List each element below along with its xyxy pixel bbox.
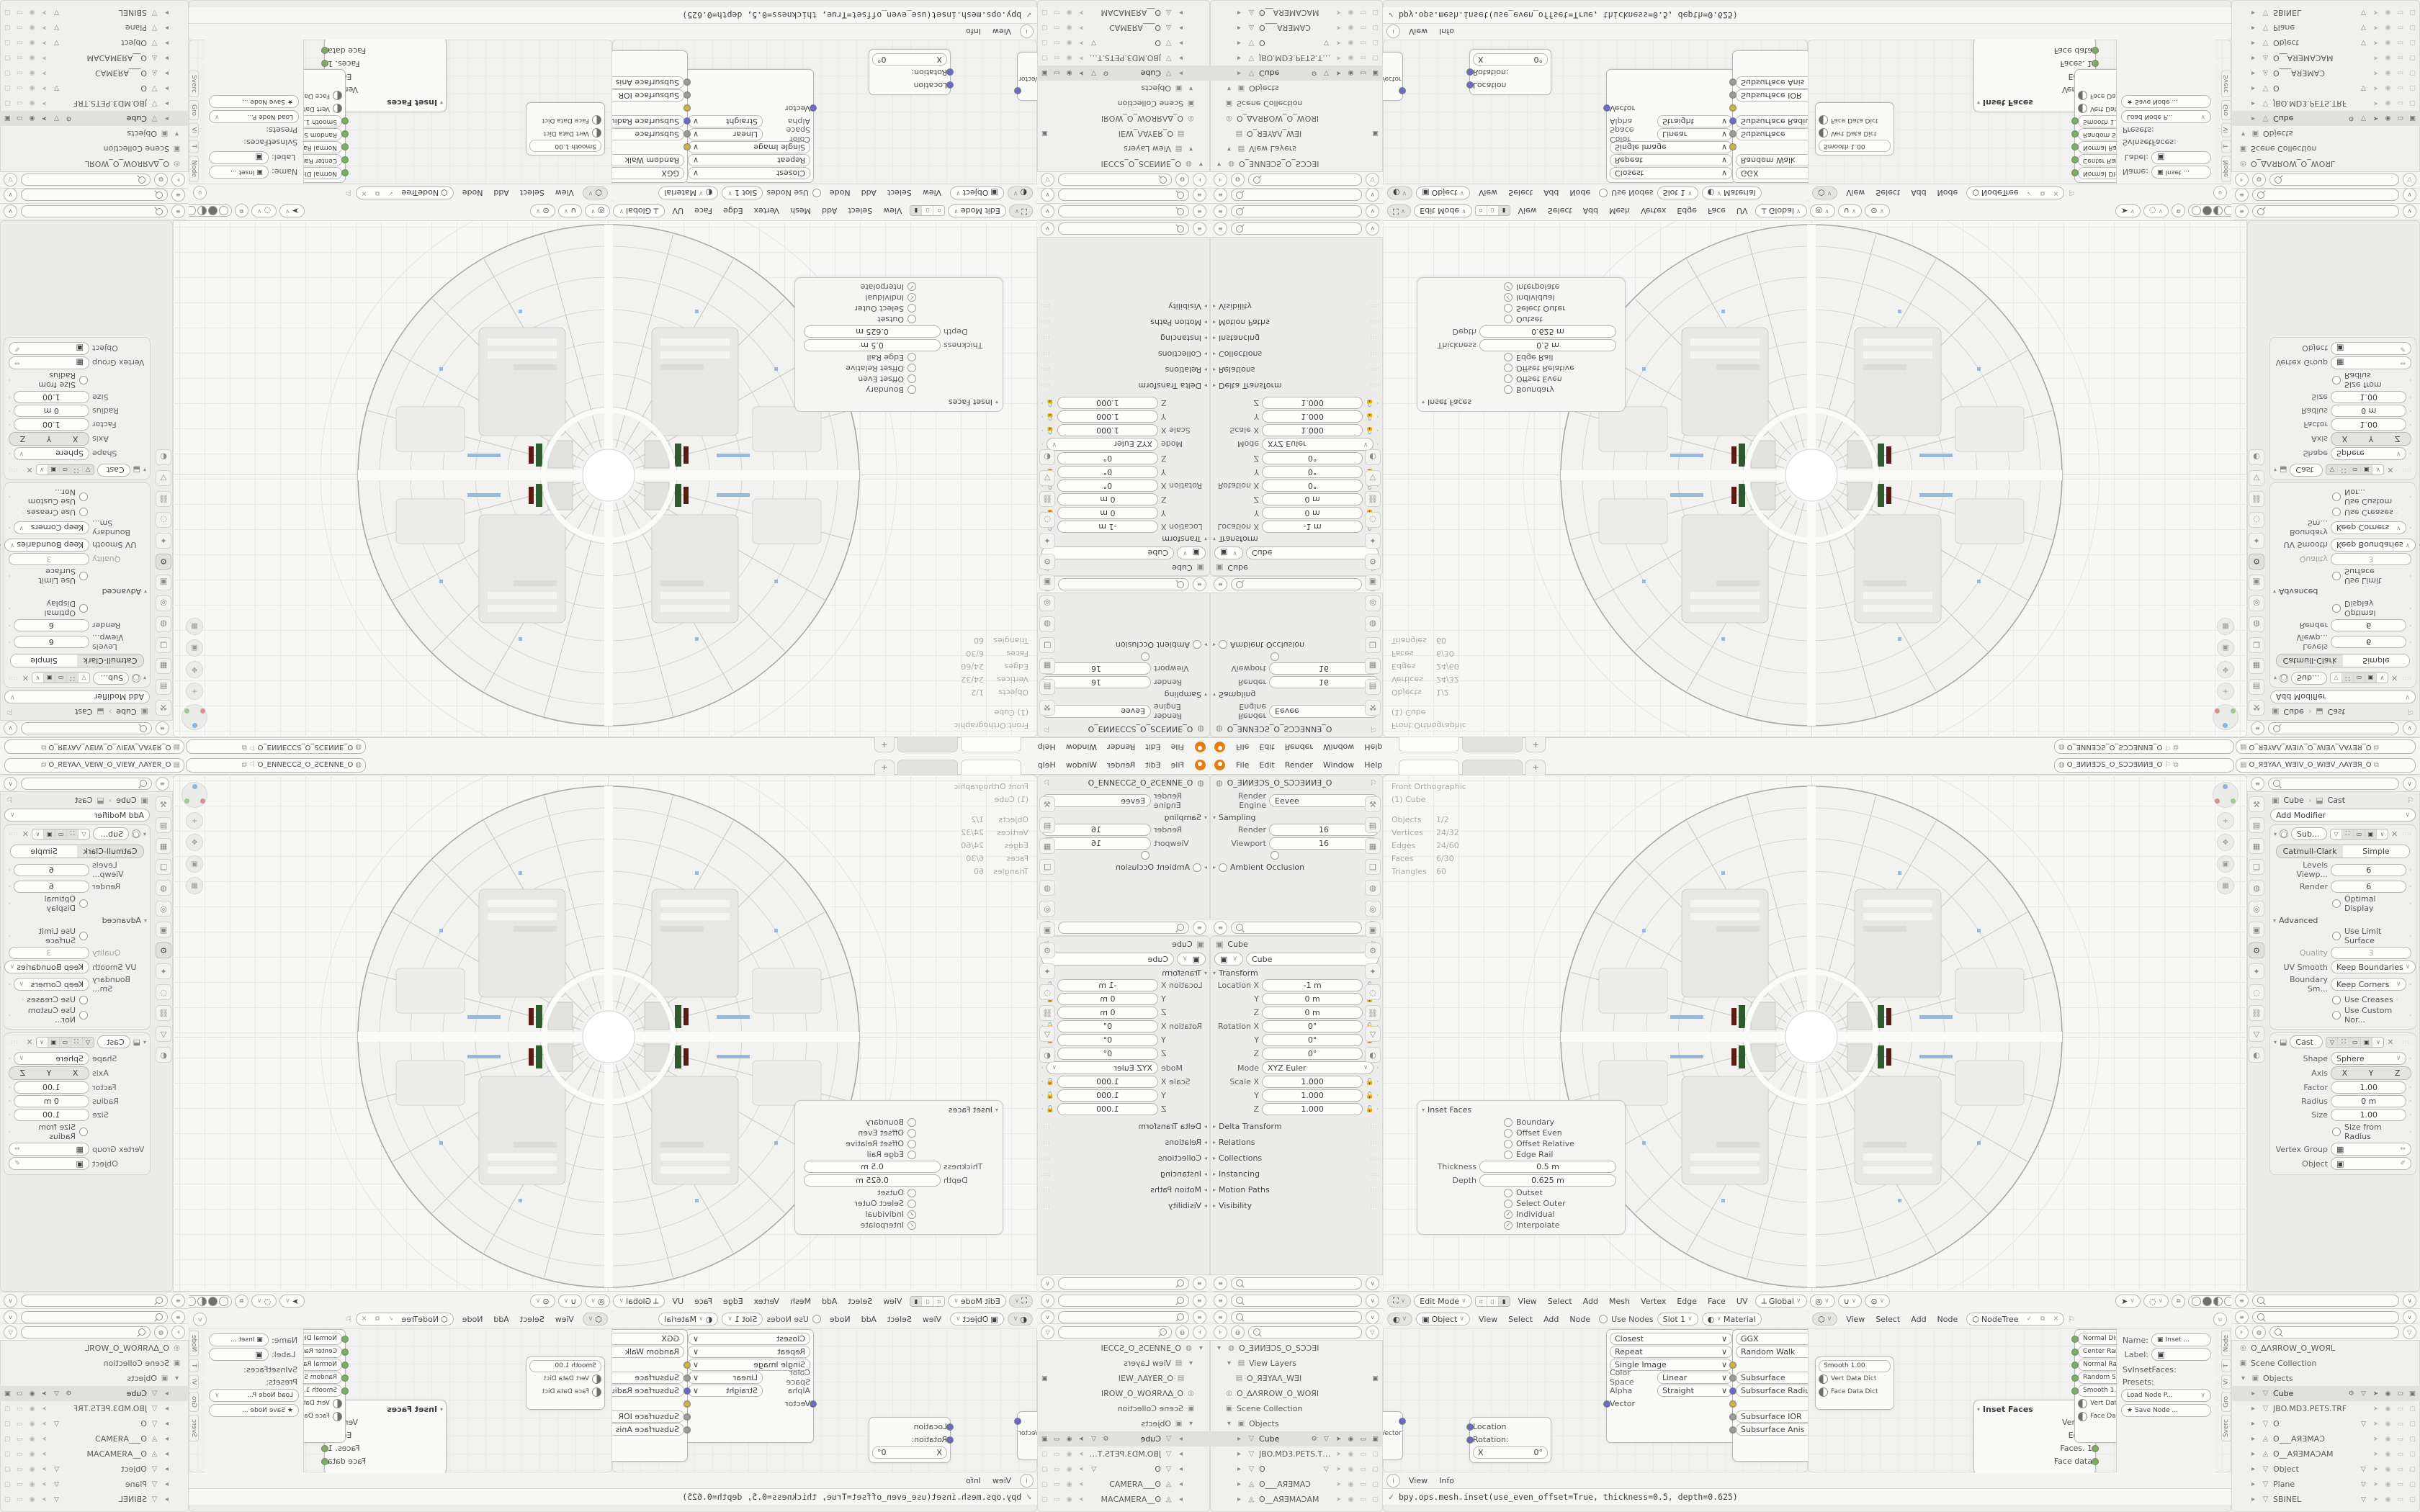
eye-icon[interactable]: ◉	[1065, 1451, 1074, 1458]
material-slot-select[interactable]: Slot 1∨	[722, 186, 763, 199]
tab-world-icon[interactable]: ◎	[2249, 595, 2264, 611]
camera-icon[interactable]: ▢	[3, 1481, 12, 1488]
sverchok-menu-item[interactable]: View	[550, 187, 579, 199]
camera-icon[interactable]: ▢	[3, 70, 12, 77]
sverchok-menu-item[interactable]: Select	[1870, 1313, 1905, 1326]
viewport-menu-item[interactable]: UV	[668, 1295, 689, 1308]
outliner-row[interactable]: ▾ ▣ Objects	[1210, 1416, 1383, 1431]
axis-gizmo[interactable]	[181, 704, 207, 730]
topbar-menu-item[interactable]: File	[1231, 741, 1254, 753]
pin-icon[interactable]: ⚐	[2068, 1315, 2075, 1324]
modifier-select-value[interactable]: Keep Boundaries∨	[2331, 539, 2416, 552]
outliner-row[interactable]: ▸ ◬ O___AЯƎMAƆ ➤ ◉ ▭ ▢	[1210, 20, 1383, 35]
search-input[interactable]	[2269, 174, 2399, 186]
sv-params-node[interactable]: Smooth 1.00 Vert Data Dict Face Data Dic…	[1815, 102, 1894, 156]
collapse-icon[interactable]: ▾	[2274, 831, 2277, 837]
display-mode-icon[interactable]: ⊧	[1214, 174, 1227, 187]
wireframe-shading-icon[interactable]	[2192, 1297, 2201, 1306]
transform-row-value[interactable]: 0 m	[1057, 493, 1158, 505]
pivot-point-select[interactable]: ◎∨	[585, 1295, 610, 1308]
disclosure-icon[interactable]: ▸	[162, 39, 171, 47]
monitor-toggle-icon[interactable]: ▭	[2349, 1038, 2361, 1047]
disclosure-icon[interactable]: ▸	[162, 84, 171, 92]
pin-icon[interactable]: ⚐	[2407, 707, 2414, 716]
realtime-toggle-icon[interactable]: ⛶	[71, 1038, 82, 1047]
filter-id-icon[interactable]: ◍	[154, 174, 168, 187]
mode-select[interactable]: Edit Mode∨	[1414, 1295, 1471, 1308]
select-cursor-icon[interactable]: ➤	[40, 70, 49, 77]
n-panel-tab[interactable]: T	[189, 140, 199, 153]
animate-dot-icon[interactable]: ·	[1376, 427, 1379, 433]
tab-modifier-icon[interactable]: ⚙	[2249, 942, 2264, 958]
triangulate-icon[interactable]: ▽	[1089, 1466, 1098, 1473]
eye-icon[interactable]: ◉	[2383, 100, 2393, 107]
eye-icon[interactable]: ◉	[27, 9, 37, 17]
outliner-row[interactable]: ▸ ◬ O__AЯƎMAƆAM ➤ ◉ ▭ ▢	[1210, 5, 1383, 20]
sverchok-menu-item[interactable]: Node	[457, 1313, 488, 1326]
info-log-row[interactable]: ✓ bpy.ops.mesh.inset(use_even_offset=Tru…	[189, 1489, 1037, 1505]
pin-icon[interactable]: ⚐	[2068, 189, 2075, 198]
topbar-menu-item[interactable]: File	[1166, 759, 1189, 771]
disclosure-icon[interactable]: ▸	[2249, 1420, 2258, 1428]
search-input[interactable]	[1231, 1277, 1362, 1290]
outliner-row[interactable]: ▾ ▤ View Layers	[1037, 141, 1210, 156]
pin-icon[interactable]: ⚐	[345, 1315, 352, 1324]
sampling-row-value[interactable]: 16	[1041, 824, 1151, 836]
principled-bsdf-node[interactable]: GGX Random Walk Subsurface Subsurface Ra…	[612, 1329, 688, 1462]
shader-menu-item[interactable]: View	[918, 187, 946, 199]
funnel-filter-icon[interactable]: ▽	[1366, 174, 1379, 187]
tab-tool-icon[interactable]: ⚒	[2249, 796, 2264, 812]
select-cursor-icon[interactable]: ➤	[1077, 24, 1086, 32]
sampling-row-value[interactable]: 16	[1041, 837, 1151, 850]
shader-menu-item[interactable]: Add	[1538, 1313, 1564, 1326]
disclosure-icon[interactable]: ▸	[2249, 1450, 2258, 1458]
cast-row-value[interactable]: 1.00	[2331, 391, 2406, 403]
modifier-wrench-icon[interactable]: ⚙	[2347, 115, 2356, 122]
topbar-menu-item[interactable]: Edit	[1254, 741, 1279, 753]
axis-gizmo[interactable]	[2213, 704, 2238, 730]
disclosure-icon[interactable]: ▸	[1176, 1450, 1186, 1458]
outliner-row[interactable]: ◎ O_ΔΛЯROW_O_WOЯI	[1210, 111, 1383, 126]
camera-icon[interactable]: ▢	[3, 1466, 12, 1473]
outliner-row[interactable]: ▸ ▽ SBINEL ▽ ➤ ◉ ▭ ▢	[0, 5, 189, 20]
shader-editor[interactable]: ◐∨ ▣Object∨ ViewSelectAddNode Use Nodes …	[612, 40, 1037, 202]
triangulate-icon[interactable]: ▽	[1322, 1466, 1331, 1473]
modifier-wrench-icon[interactable]: ⚙	[1101, 1436, 1111, 1443]
transform-row-value[interactable]: -1 m	[1057, 521, 1158, 533]
wireframe-shading-icon[interactable]	[219, 1297, 228, 1306]
face-select-icon[interactable]: ▮	[910, 207, 921, 216]
eye-icon[interactable]: ◉	[1346, 1451, 1355, 1458]
camera-icon[interactable]: ▢	[1371, 1466, 1380, 1473]
bsdf-row-pill[interactable]: Subsurface IOR	[1736, 90, 1808, 102]
info-menu-item[interactable]: Info	[1434, 26, 1459, 38]
triangulate-icon[interactable]: ▽	[52, 1496, 61, 1503]
outliner-row[interactable]: ▸ ◬ O__AЯƎMAƆAM ➤ ◉ ▭ ▢	[0, 1446, 189, 1462]
tab-physics-icon[interactable]: ◌	[2249, 512, 2264, 528]
disclosure-icon[interactable]: ▸	[162, 1480, 171, 1488]
disclosure-icon[interactable]: ▸	[2249, 54, 2258, 62]
viewport-menu-item[interactable]: View	[1513, 1295, 1542, 1308]
camera-icon[interactable]: ▢	[3, 85, 12, 92]
axis-toggle-button[interactable]: X	[2331, 433, 2358, 445]
tab-viewlayer-icon[interactable]: ❏	[156, 637, 171, 653]
n-panel-tab[interactable]: Sverc	[2221, 71, 2231, 97]
operator-field-value[interactable]: 0.625 m	[804, 325, 941, 338]
viewport-menu-item[interactable]: UV	[1731, 205, 1753, 217]
camera-icon[interactable]: ▢	[2408, 70, 2417, 77]
info-menu-item[interactable]: View	[1404, 26, 1433, 38]
outliner-row[interactable]: ◎ O_ΔΛЯROW_O_WOЯL	[2231, 1341, 2420, 1356]
collapse-icon[interactable]: ▾	[143, 1039, 146, 1045]
filter-id-icon[interactable]: ◍	[1175, 1326, 1189, 1339]
cast-row-value[interactable]: 1.00	[2331, 418, 2406, 431]
pin-icon[interactable]: ⚐	[1043, 778, 1050, 788]
tab-viewlayer-icon[interactable]: ❏	[2249, 859, 2264, 875]
collapsed-panel-header[interactable]: ▸Delta Transform::::	[1213, 381, 1380, 390]
eye-icon[interactable]: ◉	[2383, 1405, 2393, 1413]
outliner-row[interactable]: ▸ ▽ O ▽ ➤ ◉ ▭ ▢	[1037, 35, 1210, 50]
options-chevron-icon[interactable]: ∨	[2403, 1310, 2416, 1324]
modifier-name-field[interactable]: Cast	[2290, 464, 2323, 477]
render-engine-select[interactable]: Eevee∨	[1269, 705, 1379, 718]
zoom-icon[interactable]: +	[2217, 683, 2234, 700]
view-layer-selector[interactable]: ▤ O_ЯƎYAΛ_WƎIV_O_WIƎV_ΛAYƎЯ_O ⧉	[2236, 758, 2416, 773]
select-cursor-icon[interactable]: ➤	[2371, 70, 2380, 77]
camera-icon[interactable]: ▣	[1371, 1436, 1380, 1443]
load-node-preset-button[interactable]: Load Node P...∨	[2121, 1389, 2211, 1402]
monitor-icon[interactable]: ▭	[1052, 1466, 1062, 1473]
modifier-row-value[interactable]: 6	[14, 619, 89, 631]
tab-object-icon[interactable]: ▣	[1365, 922, 1381, 937]
copy-icon[interactable]: ⧉	[2374, 761, 2379, 769]
viewport-menu-item[interactable]: Add	[817, 1295, 842, 1308]
select-cursor-icon[interactable]: ➤	[1334, 1466, 1343, 1473]
realtime-toggle-icon[interactable]: ⛶	[66, 829, 78, 839]
ambient-occlusion-panel-header[interactable]: ▸ Ambient Occlusion::::	[1040, 640, 1207, 649]
modifier-row-value[interactable]: 6	[14, 881, 89, 893]
select-cursor-icon[interactable]: ➤	[1334, 24, 1343, 32]
funnel-filter-icon[interactable]: ▽	[1041, 1326, 1054, 1339]
triangulate-icon[interactable]: ▽	[52, 1466, 61, 1473]
show-gizmo-toggle[interactable]: ➤∨	[2115, 1295, 2141, 1308]
n-panel-tab[interactable]: Node	[2221, 156, 2231, 182]
simple-button[interactable]: Simple	[2343, 845, 2409, 858]
material-shading-icon[interactable]	[2213, 1297, 2223, 1306]
transform-row-value[interactable]: 0 m	[1262, 1007, 1363, 1019]
monitor-icon[interactable]: ▭	[1052, 1436, 1062, 1443]
pin-icon[interactable]: ⚐	[249, 761, 256, 769]
shader-type-select[interactable]: ▣Object∨	[950, 186, 1004, 199]
operator-checkbox[interactable]: Outset	[877, 315, 916, 324]
operator-checkbox[interactable]: Select Outer	[1504, 1199, 1566, 1208]
monitor-icon[interactable]: ▭	[2396, 1405, 2405, 1413]
options-chevron-icon[interactable]: ∨	[4, 777, 17, 791]
operator-checkbox[interactable]: Edge Rail	[1504, 1150, 1553, 1159]
eye-icon[interactable]: ◉	[2383, 1421, 2393, 1428]
tab-physics-icon[interactable]: ◌	[156, 984, 171, 1000]
collapsed-panel-header[interactable]: ▸Visibility::::	[1040, 1201, 1207, 1210]
outliner-row[interactable]: ▸ ▽ Plane ▽ ➤ ◉ ▭ ▢	[0, 20, 189, 35]
camera-view-icon[interactable]: ▣	[186, 855, 203, 873]
search-input[interactable]	[1058, 579, 1189, 591]
operator-field-value[interactable]: 0.5 m	[1479, 339, 1616, 351]
outliner-row[interactable]: ▾ ▣ Objects	[2231, 126, 2420, 141]
load-node-preset-button[interactable]: Load Node P...∨	[209, 1389, 299, 1402]
outliner-row[interactable]: ▸ ◬ O__AЯƎMAƆAM ➤ ◉ ▭ ▢	[0, 50, 189, 66]
viewport-3d[interactable]: Front Orthographic (1) Cube Objects1/2Ve…	[173, 775, 1037, 1310]
modifier-name-field[interactable]: Sub...	[2291, 672, 2327, 685]
filter-id-icon[interactable]: ◍	[1231, 174, 1245, 187]
camera-icon[interactable]: ▢	[2408, 100, 2417, 107]
camera-icon[interactable]: ▢	[2408, 1405, 2417, 1413]
triangulate-icon[interactable]: ▽	[2359, 85, 2368, 92]
realtime-toggle-icon[interactable]: ⛶	[2342, 829, 2354, 839]
axis-toggle-button[interactable]: Z	[9, 1067, 36, 1079]
disclosure-icon[interactable]: ▸	[1234, 54, 1244, 62]
outliner-row[interactable]: ▤ O_ЯƎYAΛ_WƎI ▣	[1037, 126, 1210, 141]
camera-icon[interactable]: ▢	[1040, 1496, 1049, 1503]
delete-modifier-icon[interactable]: ✕	[2387, 1038, 2393, 1047]
tab-world-icon[interactable]: ◎	[1039, 901, 1055, 917]
use-limit-surface-checkbox[interactable]: Use Limit Surface	[2332, 567, 2406, 585]
outliner-row[interactable]: ◎ O_ΔΛЯROW_O_WOЯI	[1037, 111, 1210, 126]
render-toggle-icon[interactable]: ▣	[2361, 466, 2372, 475]
camera-icon[interactable]: ▢	[1371, 1451, 1380, 1458]
monitor-icon[interactable]: ▭	[15, 1481, 24, 1488]
eye-icon[interactable]: ◉	[2383, 1436, 2393, 1443]
modifier-checkbox[interactable]: Use Custom Nor...	[2332, 487, 2406, 506]
monitor-icon[interactable]: ▭	[15, 1466, 24, 1473]
camera-icon[interactable]: ▢	[3, 1405, 12, 1413]
n-panel-tab[interactable]: Sverc	[189, 71, 199, 97]
edit-mode-toggle-icon[interactable]: ▽	[78, 674, 89, 683]
search-input[interactable]	[2252, 1311, 2399, 1323]
cast-row-value[interactable]: 1.00	[14, 1081, 89, 1094]
render-toggle-icon[interactable]: ▣	[2365, 674, 2377, 683]
eye-icon[interactable]: ◉	[27, 55, 37, 62]
options-chevron-icon[interactable]: ∨	[2403, 205, 2416, 219]
info-log-row[interactable]: ✓ bpy.ops.mesh.inset(use_even_offset=Tru…	[1383, 7, 2231, 23]
eye-icon[interactable]: ◉	[2383, 1496, 2393, 1503]
node-option-select[interactable]: Repeat∨	[688, 155, 810, 167]
modifier-wrench-icon[interactable]: ⚙	[2347, 1390, 2356, 1398]
funnel-filter-icon[interactable]: ▽	[4, 174, 17, 187]
transform-orientation-select[interactable]: ⟂Global∨	[1755, 204, 1806, 217]
tab-constraints-icon[interactable]: ⛓	[1039, 491, 1055, 507]
disclosure-icon[interactable]: ▾	[1214, 160, 1224, 168]
select-cursor-icon[interactable]: ➤	[40, 1451, 49, 1458]
viewport-menu-item[interactable]: Edge	[1672, 1295, 1702, 1308]
tab-output-icon[interactable]: ▦	[1365, 658, 1381, 674]
tab-tool-icon[interactable]: ⚒	[1365, 700, 1381, 716]
lock-icon[interactable]: 🔓	[1047, 1106, 1054, 1113]
tab-scene-icon[interactable]: ◍	[1039, 616, 1055, 632]
node-field-select[interactable]: Linear∨	[1657, 1372, 1732, 1384]
add-workspace-tab[interactable]: +	[1525, 738, 1546, 753]
shader-menu-item[interactable]: Select	[882, 187, 917, 199]
node-name-field[interactable]: ▣Inset ...	[209, 166, 269, 179]
copy-icon[interactable]: ⧉	[2173, 743, 2178, 751]
disclosure-icon[interactable]: ▸	[2249, 114, 2258, 122]
select-cursor-icon[interactable]: ➤	[2371, 55, 2380, 62]
tab-particles-icon[interactable]: ✦	[1365, 963, 1381, 979]
shader-menu-item[interactable]: Add	[856, 1313, 882, 1326]
inset-panel-title-row[interactable]: ▾Inset Faces	[799, 397, 998, 407]
operator-field-value[interactable]: 0.5 m	[804, 339, 941, 351]
sverchok-menu-item[interactable]: Node	[457, 187, 488, 199]
select-cursor-icon[interactable]: ➤	[1077, 1496, 1086, 1503]
select-cursor-icon[interactable]: ➤	[2371, 100, 2380, 107]
monitor-icon[interactable]: ▭	[1052, 40, 1062, 47]
filter-icon[interactable]: ≡	[1193, 578, 1206, 592]
outliner-row[interactable]: ▸ ◬ O__AЯƎMAƆAM ➤ ◉ ▭ ▢	[1210, 1492, 1383, 1507]
outliner-row[interactable]: ▸ ▽ Plane ▽ ➤ ◉ ▭ ▢	[2231, 20, 2420, 35]
filter-icon[interactable]: ≡	[1193, 1277, 1206, 1290]
eye-icon[interactable]: ◉	[27, 1421, 37, 1428]
pin-icon[interactable]: ⚐	[1370, 724, 1377, 734]
node-field-select[interactable]: Linear∨	[688, 1372, 763, 1384]
triangulate-icon[interactable]: ▽	[2359, 1390, 2368, 1398]
disclosure-icon[interactable]: ▾	[2238, 1374, 2248, 1382]
shader-editor[interactable]: ◐∨ ▣Object∨ ViewSelectAddNode Use Nodes …	[612, 1310, 1037, 1472]
sverchok-menu-item[interactable]: Select	[1870, 187, 1905, 199]
monitor-icon[interactable]: ▭	[15, 70, 24, 77]
operator-checkbox[interactable]: Outset	[1504, 315, 1543, 324]
eye-icon[interactable]: ◉	[27, 70, 37, 77]
disclosure-icon[interactable]: ▸	[1176, 54, 1186, 62]
cast-object-field[interactable]: ▣✐	[2331, 342, 2411, 355]
sverchok-menu-item[interactable]: Select	[515, 1313, 550, 1326]
outliner-row[interactable]: ▸ ▽ Cube ⚙ ▽ ➤ ◉ ▭ ▣	[2231, 111, 2420, 126]
monitor-icon[interactable]: ▭	[15, 1436, 24, 1443]
disclosure-icon[interactable]: ▸	[1234, 69, 1244, 77]
funnel-filter-icon[interactable]: ▽	[2403, 1326, 2416, 1339]
scale-row-value[interactable]: 1.000	[1057, 397, 1158, 409]
extras-chevron-icon[interactable]: ∨	[37, 466, 48, 475]
monitor-icon[interactable]: ▭	[2396, 1421, 2405, 1428]
node-field-select[interactable]: Linear∨	[1657, 129, 1732, 141]
outliner-row[interactable]: ▾ ▣ Objects	[2231, 1371, 2420, 1386]
outliner-row[interactable]: ▾ ◍ O_ƎИИƎƆS_O_SƆƆƎI	[1210, 156, 1383, 171]
pivot-point-select[interactable]: ◎∨	[585, 204, 610, 217]
eye-icon[interactable]: ◉	[27, 1496, 37, 1503]
outliner-row[interactable]: ▸ ▽ JBO.MD3.PETS.TRF ➤ ◉ ▭ ▢	[0, 1401, 189, 1416]
shader-menu-item[interactable]: View	[918, 1313, 946, 1326]
disclosure-icon[interactable]: ▸	[2249, 24, 2258, 32]
search-input[interactable]	[21, 1295, 168, 1307]
extras-chevron-icon[interactable]: ∨	[2377, 829, 2388, 839]
eye-icon[interactable]: ◉	[2383, 9, 2393, 17]
disclosure-icon[interactable]: ▸	[1234, 1435, 1244, 1443]
sampling-row-value[interactable]: 16	[1269, 676, 1379, 688]
display-mode-icon[interactable]: ⊧	[171, 174, 185, 187]
monitor-icon[interactable]: ▭	[1052, 9, 1062, 17]
view-layer-selector[interactable]: ▤ O_ЯƎYAΛ_WƎIV_O_WIƎV_ΛAYƎЯ_O ⧉	[2236, 740, 2416, 755]
move-hand-icon[interactable]: ✥	[186, 834, 203, 851]
eye-icon[interactable]: ◉	[27, 1451, 37, 1458]
disclosure-icon[interactable]: ▸	[2249, 1465, 2258, 1473]
eye-icon[interactable]: ◉	[27, 115, 37, 122]
transform-row-value[interactable]: 0 m	[1262, 507, 1363, 519]
eye-icon[interactable]: ◉	[1065, 1466, 1074, 1473]
inset-panel-title-row[interactable]: ▾Inset Faces	[799, 1105, 998, 1115]
disclosure-icon[interactable]: ▸	[2249, 69, 2258, 77]
outliner-row[interactable]: ▾ ▤ View Layers	[1210, 1356, 1383, 1371]
select-cursor-icon[interactable]: ➤	[40, 55, 49, 62]
collapsed-panel-header[interactable]: ▸Motion Paths::::	[1040, 1185, 1207, 1194]
quality-value[interactable]: 3	[9, 553, 89, 565]
monitor-icon[interactable]: ▭	[15, 1390, 24, 1398]
camera-icon[interactable]: ▢	[1371, 9, 1380, 17]
select-cursor-icon[interactable]: ➤	[1077, 40, 1086, 47]
load-node-preset-button[interactable]: Load Node P...∨	[209, 110, 299, 123]
select-cursor-icon[interactable]: ➤	[1077, 1466, 1086, 1473]
tab-particles-icon[interactable]: ✦	[156, 963, 171, 979]
bsdf-row-pill[interactable]: Random Walk	[1736, 1346, 1808, 1358]
eye-icon[interactable]: ◉	[2383, 1481, 2393, 1488]
transform-row-value[interactable]: 0°	[1262, 1048, 1363, 1060]
extras-chevron-icon[interactable]: ∨	[32, 829, 43, 839]
node-name-field[interactable]: ▣Inset ...	[209, 1333, 269, 1346]
filter-id-icon[interactable]: ◍	[2252, 1326, 2266, 1339]
advanced-panel-title[interactable]: Advanced	[2279, 916, 2318, 925]
topbar-menu-item[interactable]: Window	[1318, 741, 1359, 753]
sampling-row-value[interactable]: 16	[1269, 662, 1379, 675]
collapsed-panel-header[interactable]: ▸Visibility::::	[1213, 1201, 1380, 1210]
outliner-row[interactable]: ▸ ▽ Cube ⚙ ▽ ➤ ◉ ▭ ▣	[1037, 66, 1210, 81]
n-panel-tab[interactable]: Node	[189, 156, 199, 182]
eye-icon[interactable]: ◉	[27, 1436, 37, 1443]
ao-toggle[interactable]	[1193, 863, 1201, 872]
render-toggle-icon[interactable]: ▣	[2361, 1038, 2372, 1047]
n-panel-tab[interactable]: Vi	[2221, 123, 2231, 138]
node-option-select[interactable]: Repeat∨	[688, 1346, 810, 1358]
outliner-row[interactable]: ▸ ◬ O___AЯƎMAƆ ➤ ◉ ▭ ▢	[1037, 20, 1210, 35]
scale-row-value[interactable]: 1.000	[1262, 397, 1363, 409]
info-icon[interactable]: i	[1386, 25, 1400, 39]
sverchok-menu-item[interactable]: View	[1841, 1313, 1870, 1326]
operator-checkbox[interactable]: Boundary	[1504, 385, 1554, 395]
outliner-row[interactable]: ▸ ▽ Plane ▽ ➤ ◉ ▭ ▢	[0, 1477, 189, 1492]
face-select-icon[interactable]: ▮	[1499, 1297, 1510, 1306]
eye-icon[interactable]: ◉	[2383, 115, 2393, 122]
modifier-checkbox[interactable]: Use Custom Nor...	[14, 487, 88, 506]
node-name-field[interactable]: ▣Inset ...	[2151, 166, 2211, 179]
eye-icon[interactable]: ◉	[2383, 1466, 2393, 1473]
bsdf-row-pill[interactable]: GGX	[1736, 1333, 1808, 1345]
camera-icon[interactable]: ▢	[2408, 55, 2417, 62]
mapping-x-field[interactable]: X 0°	[1473, 54, 1548, 66]
camera-icon[interactable]: ▢	[1040, 55, 1049, 62]
tab-object-icon[interactable]: ▣	[2249, 575, 2264, 590]
search-input[interactable]	[21, 206, 168, 218]
modifier-checkbox[interactable]: Use Creases	[2332, 508, 2393, 517]
camera-icon[interactable]: ▢	[1040, 9, 1049, 17]
options-chevron-icon[interactable]: ∨	[1366, 1277, 1379, 1290]
perspective-toggle-icon[interactable]: ▦	[2217, 877, 2234, 894]
outliner-row[interactable]: ▸ ▽ O ▽ ➤ ◉ ▭ ▢	[1037, 1462, 1210, 1477]
object-id-icon[interactable]: ▣∨	[1214, 953, 1243, 966]
filter-icon[interactable]: ≡	[1214, 205, 1227, 219]
scale-row-value[interactable]: 1.000	[1262, 424, 1363, 436]
save-node-preset-button[interactable]: ★Save Node ...	[209, 95, 299, 108]
shader-menu-item[interactable]: Node	[1564, 1313, 1595, 1326]
outliner-row[interactable]: ▾ ▣ Objects	[1037, 1416, 1210, 1431]
select-cursor-icon[interactable]: ➤	[40, 1436, 49, 1443]
tab-render-icon[interactable]: ▤	[2249, 679, 2264, 695]
